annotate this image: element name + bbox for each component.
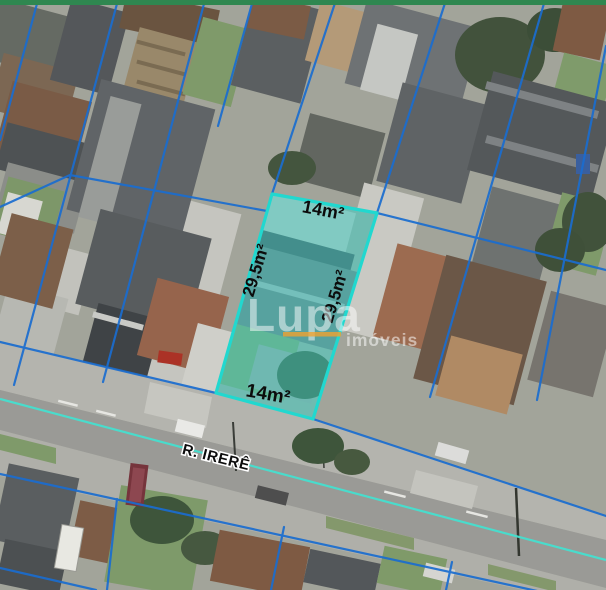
aerial-map-image: 14m² 29,5m² 29,5m² 14m² R. IRERÊ Lupa im… [0,0,606,590]
tree [334,449,370,475]
top-green-bar [0,0,606,5]
watermark-accent-bar [283,332,341,337]
tree [535,228,585,272]
watermark-word: imóveis [346,330,418,350]
tree [268,151,316,185]
listing-photo-frame: 14m² 29,5m² 29,5m² 14m² R. IRERÊ Lupa im… [0,0,606,590]
